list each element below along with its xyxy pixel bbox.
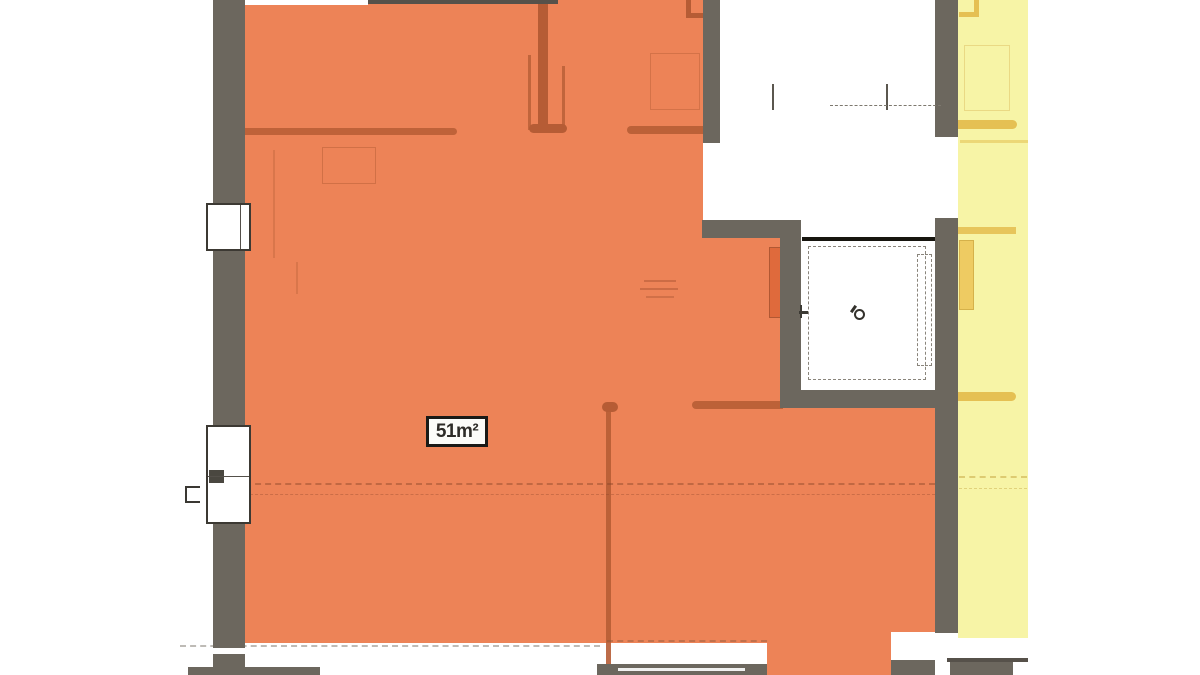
survey-tick	[772, 84, 774, 110]
door-frame-line	[562, 66, 565, 130]
faint-room-text	[646, 296, 674, 298]
interior-wall-line	[627, 126, 703, 134]
wall-notch	[891, 632, 935, 662]
window-pane-line	[208, 476, 249, 477]
corner-bracket-line	[686, 13, 704, 18]
shower-tray-outline	[808, 246, 926, 380]
furniture-outline	[273, 150, 275, 258]
furniture-outline	[296, 262, 298, 294]
wall-segment	[935, 218, 958, 390]
window-pane-line	[240, 205, 241, 249]
glass-partition-line	[802, 237, 935, 241]
wall-segment	[935, 408, 958, 633]
interior-wall-line	[958, 392, 1016, 401]
wall-segment	[213, 250, 245, 427]
window	[206, 203, 251, 251]
survey-tick	[886, 84, 888, 110]
partition-line	[606, 405, 611, 667]
drain-icon	[854, 309, 865, 320]
furniture-outline	[650, 53, 700, 110]
corner-bracket-line	[959, 12, 979, 17]
section-line	[245, 483, 935, 485]
section-line	[607, 640, 767, 642]
floor-plan: 51m²	[0, 0, 1200, 675]
section-line	[959, 488, 1027, 489]
wall-segment	[213, 0, 245, 205]
wall-segment	[780, 238, 801, 408]
facade-bracket-mark	[185, 486, 200, 503]
orange-unit-floor	[767, 643, 891, 675]
survey-dashed-line	[830, 105, 941, 106]
shower-tray-outline	[917, 254, 932, 366]
wall-segment	[891, 660, 935, 675]
wall-stub	[538, 0, 548, 130]
wall-segment	[188, 667, 320, 675]
interior-wall-line	[958, 120, 1017, 129]
area-label-text: 51m²	[436, 421, 478, 443]
door-hinge-mark	[800, 305, 802, 318]
cut-edge-line	[368, 0, 558, 4]
section-line	[959, 476, 1027, 478]
interior-wall-line	[692, 401, 783, 409]
floor-plan-scan: 51m²	[0, 0, 1200, 675]
cut-edge-line	[947, 658, 1028, 662]
area-label: 51m²	[426, 416, 488, 447]
window	[206, 425, 251, 524]
wall-segment	[935, 0, 958, 137]
cut-edge-gap	[245, 0, 368, 5]
orange-unit-floor	[245, 0, 703, 643]
faint-room-text	[640, 288, 678, 290]
furniture-outline	[964, 45, 1010, 111]
wall-segment	[213, 522, 245, 648]
door-frame-line	[528, 55, 531, 130]
interior-wall-line	[245, 128, 457, 135]
wall-cavity-line	[618, 668, 745, 671]
wall-stub-foot	[529, 124, 567, 133]
wall-segment	[703, 0, 720, 143]
faint-room-text	[644, 280, 676, 282]
interior-wall-line	[960, 140, 1028, 143]
furniture-outline	[322, 147, 376, 184]
section-line	[245, 494, 935, 495]
interior-wall-line	[958, 227, 1016, 234]
radiator	[959, 240, 974, 310]
wall-segment	[950, 662, 1013, 675]
wall-segment	[780, 390, 958, 408]
orange-unit-floor	[780, 408, 935, 643]
wall-segment	[702, 220, 801, 238]
